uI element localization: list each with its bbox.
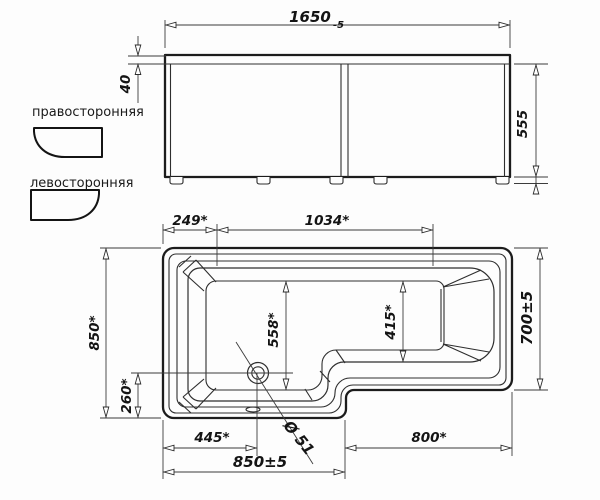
dim-front-height-label: 555 [515,110,531,138]
right-orientation-label: правосторонняя [32,105,144,120]
right-orientation-tub-icon [34,128,102,157]
dim-right-section-length-label: 800* [411,430,446,446]
dim-top-row: 249* 1034* [163,213,433,266]
bathtub-drawing: правосторонняя левосторонняя 1650 [0,0,600,500]
drawing-sheet: правосторонняя левосторонняя 1650 [0,0,600,500]
dim-overall-length-tolerance: -5 [333,20,344,31]
plan-outline [163,248,512,418]
dim-total-width-label: 850* [87,315,103,350]
dim-inner-width-left: 558* [266,281,289,390]
front-view-panel-lines [165,64,510,177]
dim-right-width: 700±5 [514,248,548,390]
dim-apron-height: 40 [118,36,166,103]
dim-left-offset-label: 249* [172,213,207,229]
legend: правосторонняя левосторонняя [30,105,144,220]
dim-apron-height-label: 40 [118,75,134,95]
dim-left-section-length-label: 850±5 [233,453,287,471]
dim-inner-length-label: 1034* [305,213,350,229]
dim-drain-from-bottom-label: 260* [119,378,135,413]
left-orientation-label: левосторонняя [30,176,133,191]
bowl-floor [206,281,444,390]
dim-front-height: 555 [514,64,548,194]
dim-inner-width-right-label: 415* [383,304,399,340]
dim-drain-from-bottom: 260* [119,373,141,418]
dim-left-section-length: 850±5 [163,453,345,475]
dim-drain-from-left-label: 445* [193,430,229,446]
plan-view: 249* 1034* 850* 260* 558* [87,213,548,479]
dim-overall-length: 1650 -5 [165,8,510,48]
dim-mid-row: 445* 800* [163,392,512,479]
front-view: 1650 -5 40 555 [118,8,548,194]
front-view-outline [165,55,510,177]
dim-inner-width-left-label: 558* [266,312,282,347]
overflow-slot [246,407,260,412]
left-orientation-tub-icon [31,190,99,220]
dim-overall-length-label: 1650 [289,8,331,26]
dim-right-width-label: 700±5 [518,291,536,345]
